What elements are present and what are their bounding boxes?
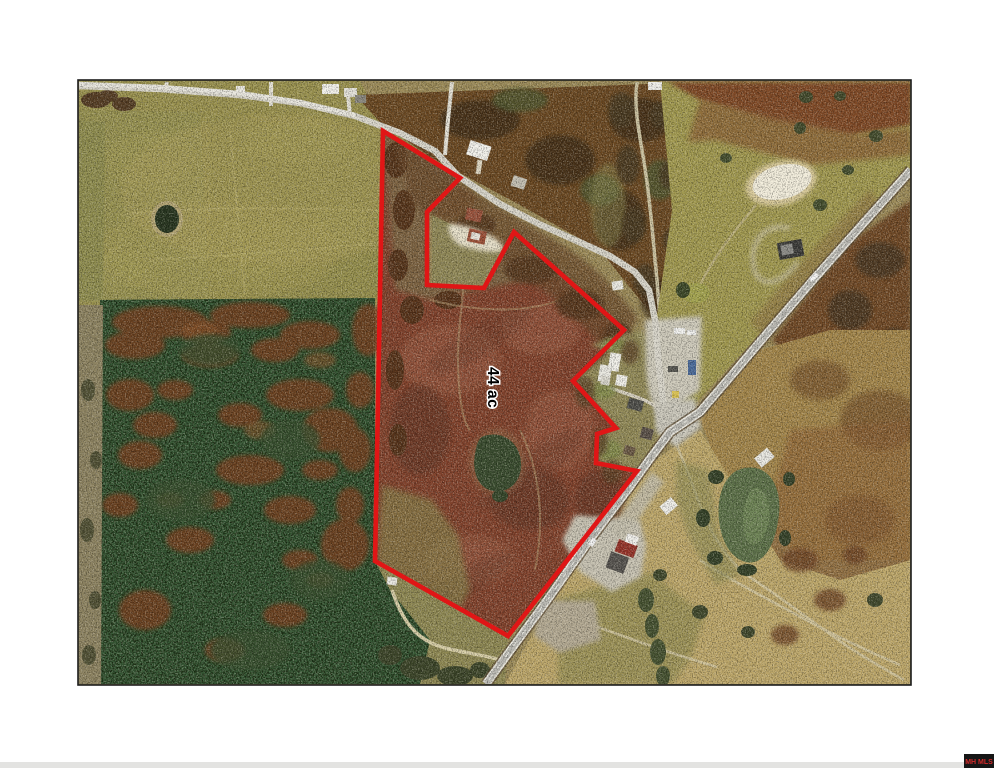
svg-text:MH MLS: MH MLS [965,759,993,766]
svg-text:44 ac: 44 ac [484,367,501,408]
